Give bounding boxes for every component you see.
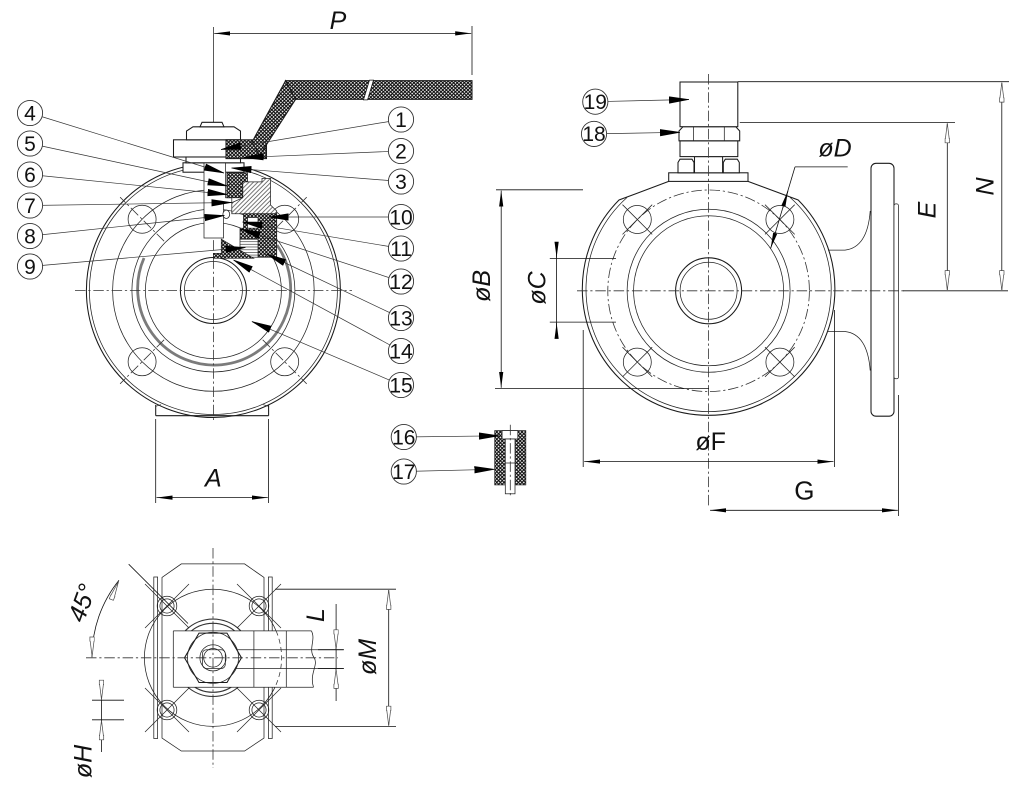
svg-text:5: 5 [24, 133, 36, 156]
svg-text:2: 2 [395, 140, 407, 163]
svg-text:N: N [972, 177, 1000, 196]
svg-text:G: G [794, 476, 814, 506]
svg-text:øF: øF [695, 428, 726, 456]
svg-text:øC: øC [523, 270, 551, 304]
svg-text:7: 7 [24, 195, 36, 218]
svg-text:13: 13 [389, 307, 412, 330]
svg-text:19: 19 [584, 91, 607, 114]
svg-text:øH: øH [70, 744, 98, 778]
svg-text:15: 15 [389, 374, 412, 397]
svg-text:A: A [203, 464, 222, 492]
svg-text:øB: øB [468, 270, 496, 302]
svg-text:12: 12 [389, 271, 412, 294]
svg-text:17: 17 [392, 461, 415, 484]
svg-text:18: 18 [582, 123, 605, 146]
svg-text:14: 14 [389, 340, 413, 363]
svg-text:16: 16 [392, 426, 415, 449]
svg-text:L: L [302, 608, 330, 622]
svg-text:E: E [914, 201, 942, 218]
svg-text:øM: øM [354, 639, 382, 675]
svg-text:P: P [330, 7, 347, 35]
svg-text:11: 11 [390, 238, 412, 261]
svg-text:øD: øD [818, 134, 851, 162]
svg-text:6: 6 [24, 164, 36, 187]
svg-text:1: 1 [395, 109, 407, 132]
svg-text:8: 8 [24, 225, 36, 248]
svg-text:3: 3 [395, 171, 407, 194]
svg-text:4: 4 [24, 102, 36, 125]
svg-text:10: 10 [389, 206, 412, 229]
svg-text:9: 9 [24, 256, 36, 279]
